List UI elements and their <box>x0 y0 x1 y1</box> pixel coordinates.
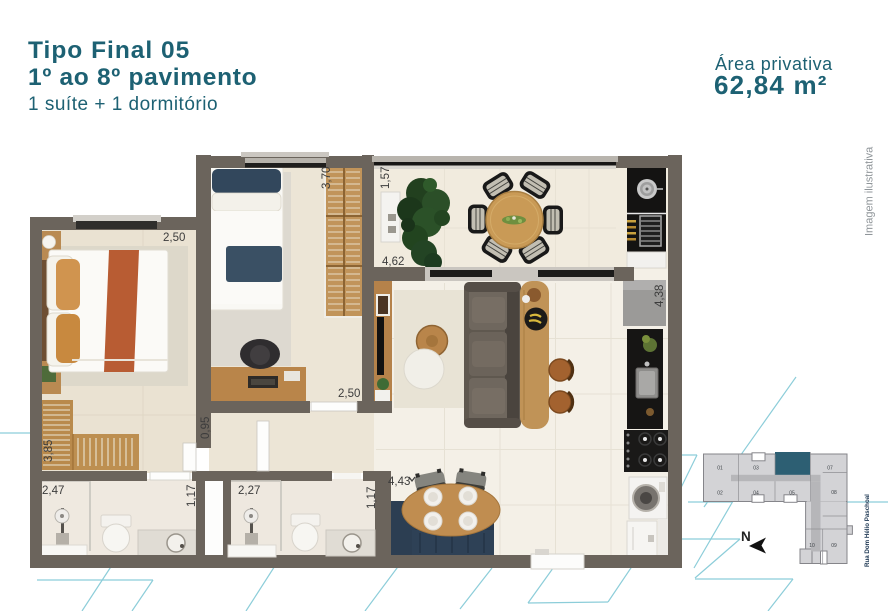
svg-text:2,50: 2,50 <box>338 388 360 400</box>
svg-text:0,95: 0,95 <box>200 417 212 439</box>
svg-text:4,62: 4,62 <box>382 256 404 268</box>
svg-text:1 suíte + 1 dormitório: 1 suíte + 1 dormitório <box>28 94 218 115</box>
svg-text:02: 02 <box>717 491 723 497</box>
svg-text:03: 03 <box>753 466 759 472</box>
svg-text:4,43: 4,43 <box>388 476 410 488</box>
svg-text:1,17: 1,17 <box>366 487 378 509</box>
svg-text:1º ao 8º pavimento: 1º ao 8º pavimento <box>28 64 257 91</box>
svg-text:4,38: 4,38 <box>654 285 666 307</box>
svg-text:05: 05 <box>789 491 795 497</box>
svg-text:2,47: 2,47 <box>42 485 64 497</box>
svg-text:Imagem ilustrativa: Imagem ilustrativa <box>864 146 876 236</box>
svg-text:N: N <box>741 529 751 544</box>
svg-text:3,85: 3,85 <box>43 440 55 462</box>
svg-text:01: 01 <box>717 466 723 472</box>
svg-text:1,17: 1,17 <box>186 485 198 507</box>
svg-text:09: 09 <box>831 543 837 549</box>
svg-text:Tipo Final 05: Tipo Final 05 <box>28 37 190 64</box>
svg-text:2,27: 2,27 <box>238 485 260 497</box>
svg-text:62,84 m²: 62,84 m² <box>714 70 828 100</box>
svg-text:1,57: 1,57 <box>380 167 392 189</box>
svg-text:10: 10 <box>809 543 815 549</box>
svg-text:04: 04 <box>753 491 759 497</box>
svg-text:3,70: 3,70 <box>321 167 333 189</box>
svg-text:2,50: 2,50 <box>163 232 185 244</box>
svg-text:08: 08 <box>831 490 837 496</box>
svg-text:Rua Dom Hélio Paschoal: Rua Dom Hélio Paschoal <box>864 494 871 567</box>
svg-text:07: 07 <box>827 466 833 472</box>
